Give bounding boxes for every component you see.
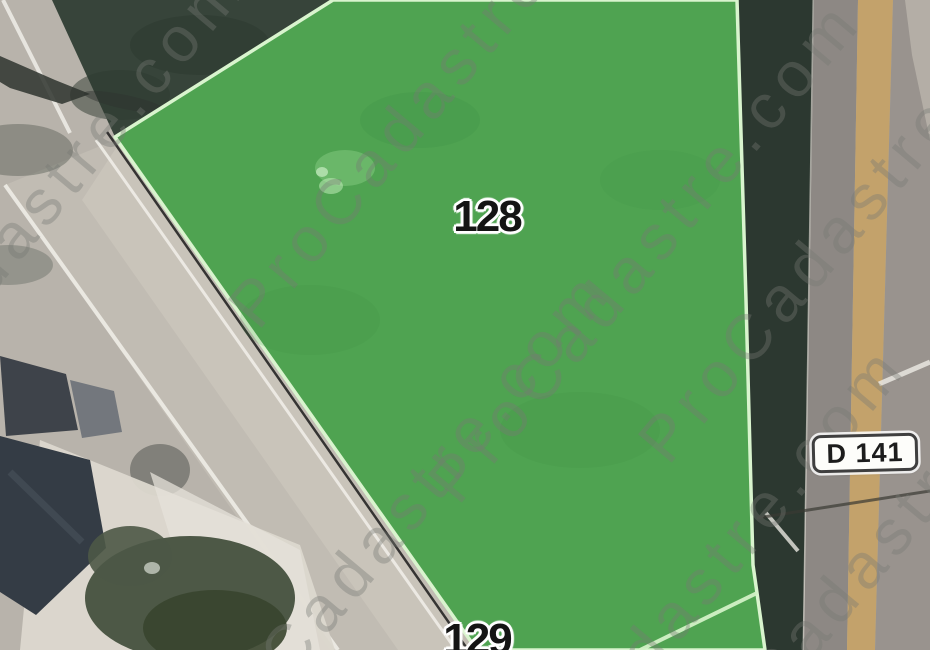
parcel-label-129: 129 (443, 615, 510, 650)
road-sign-d141: D 141 (812, 433, 919, 474)
parcel-label-128: 128 (453, 192, 520, 242)
aerial-imagery (0, 0, 930, 650)
cadastral-map-viewport[interactable]: ProCadastre.com ProCadastre.com ProCadas… (0, 0, 930, 650)
